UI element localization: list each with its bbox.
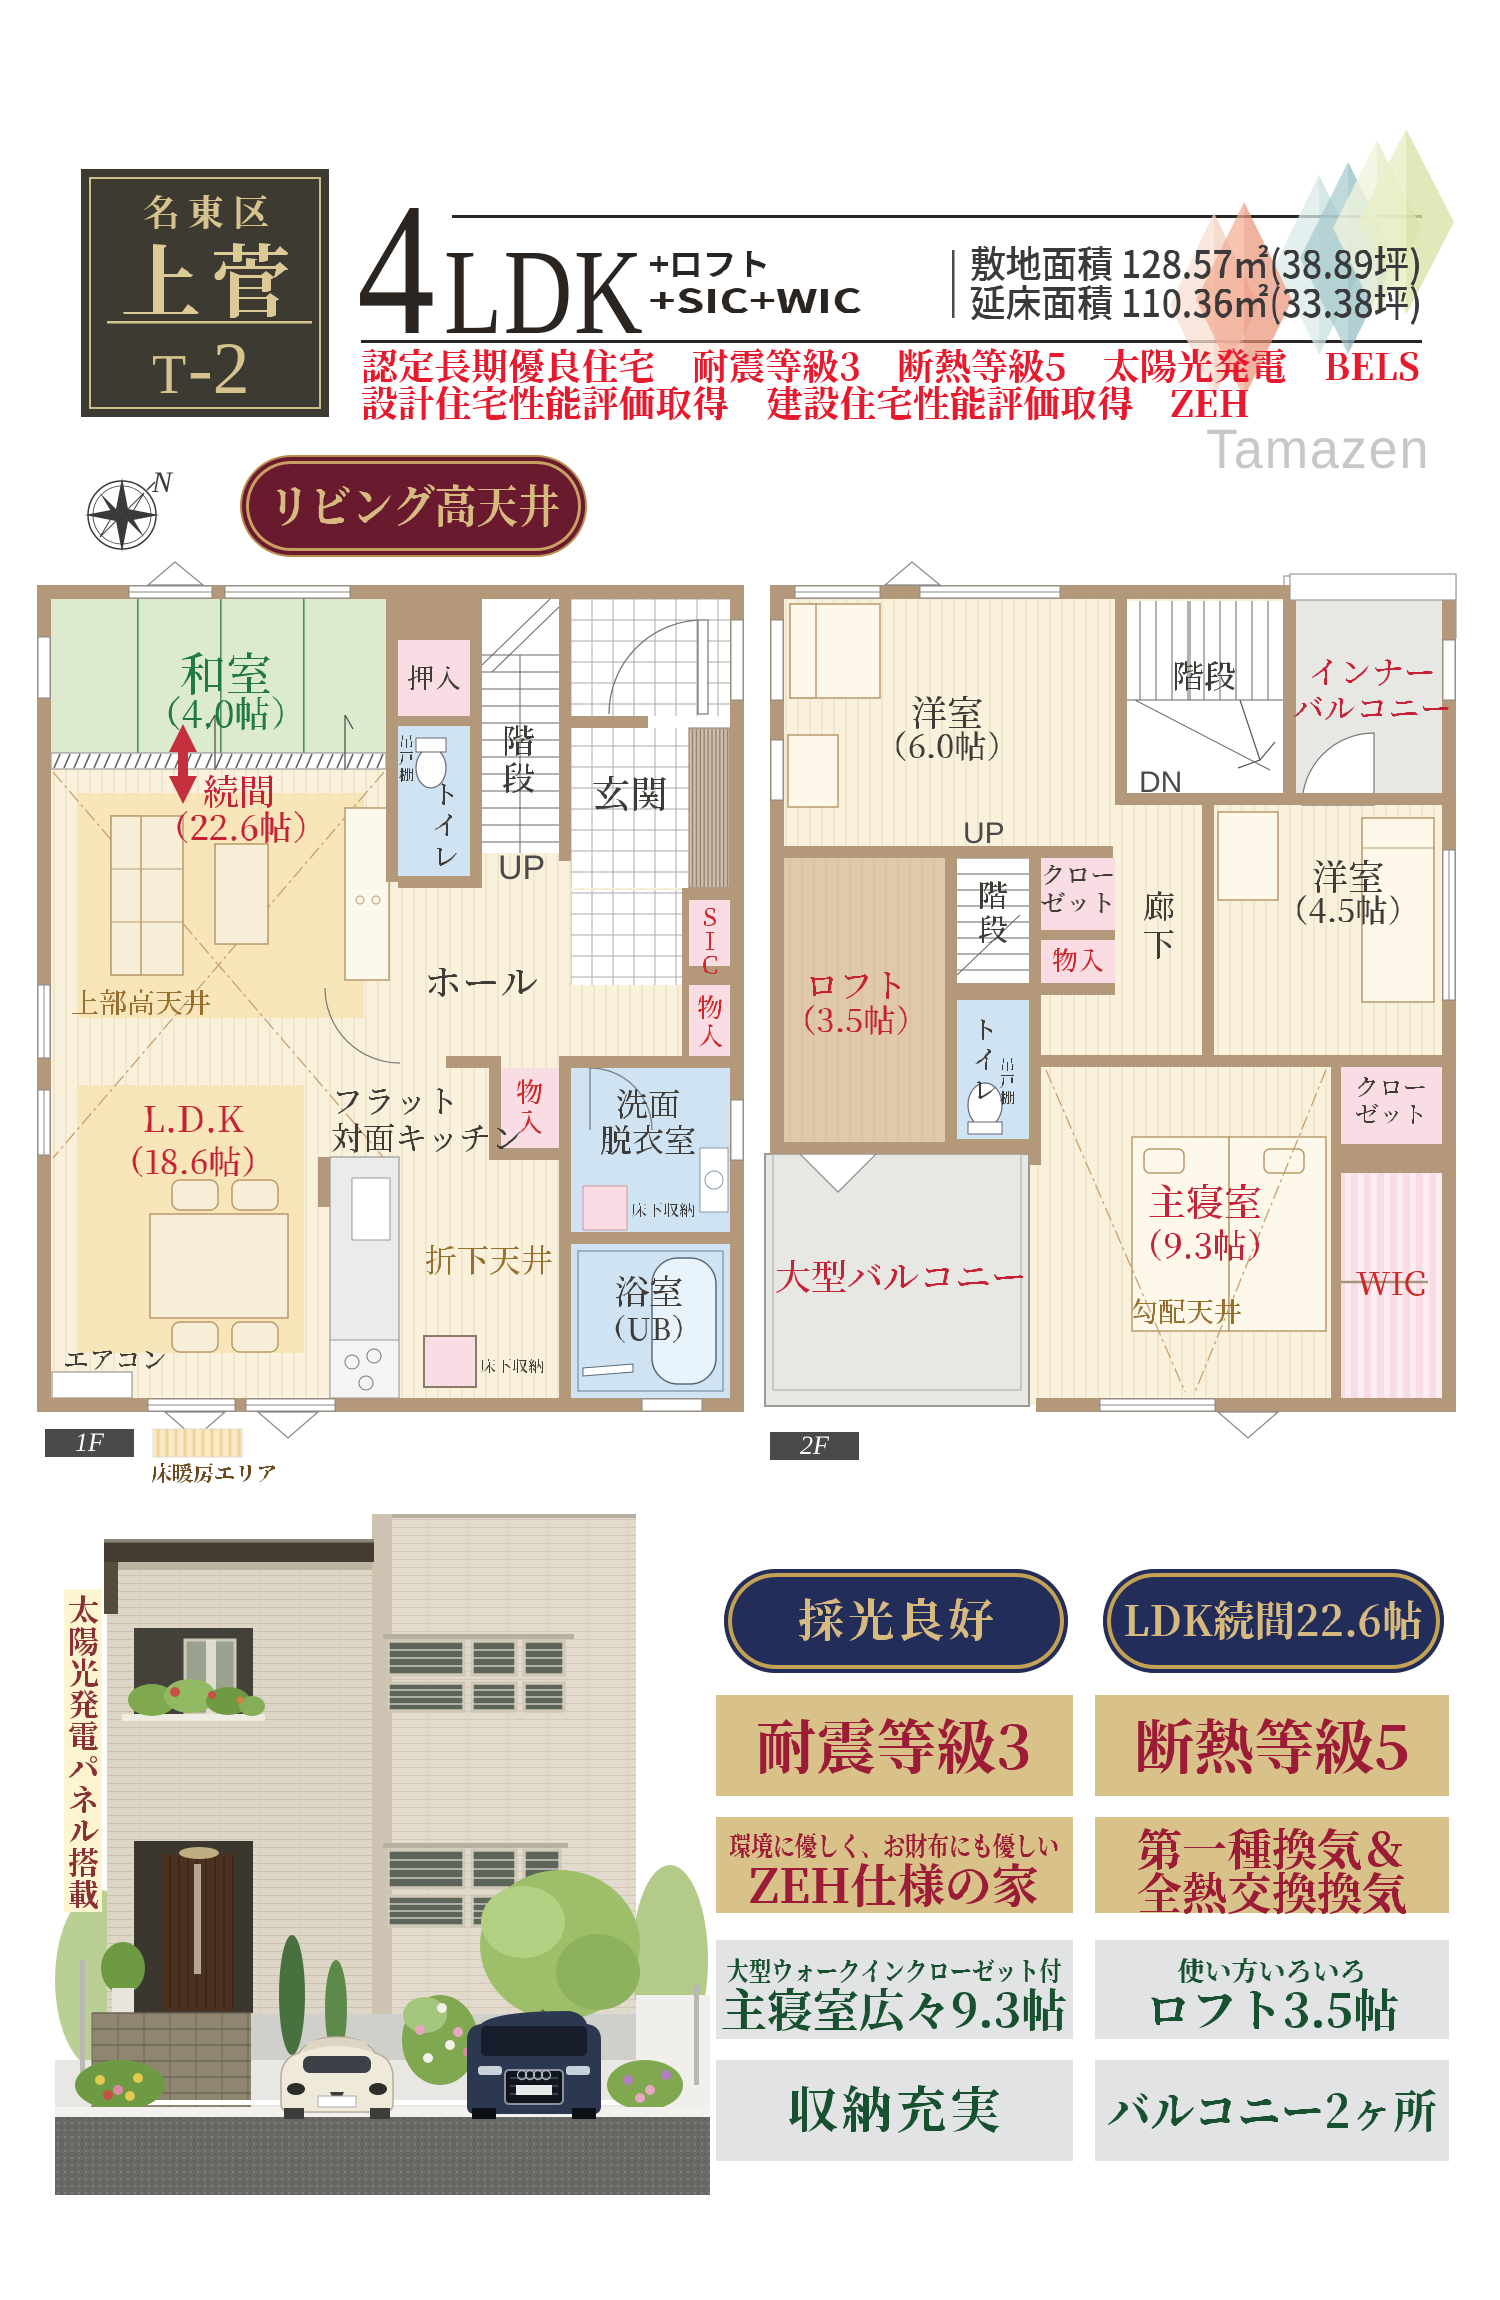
svg-text:Tamazen: Tamazen <box>1206 418 1430 480</box>
svg-text:2F: 2F <box>800 1431 830 1460</box>
svg-text:DN: DN <box>1139 766 1182 799</box>
svg-text:UP: UP <box>963 817 1005 850</box>
svg-text:1F: 1F <box>75 1428 105 1457</box>
svg-text:LDK: LDK <box>444 225 644 360</box>
svg-text:T: T <box>152 344 186 406</box>
svg-text:N: N <box>151 466 174 499</box>
svg-text:UP: UP <box>498 849 545 887</box>
svg-text:-2: -2 <box>188 328 250 410</box>
